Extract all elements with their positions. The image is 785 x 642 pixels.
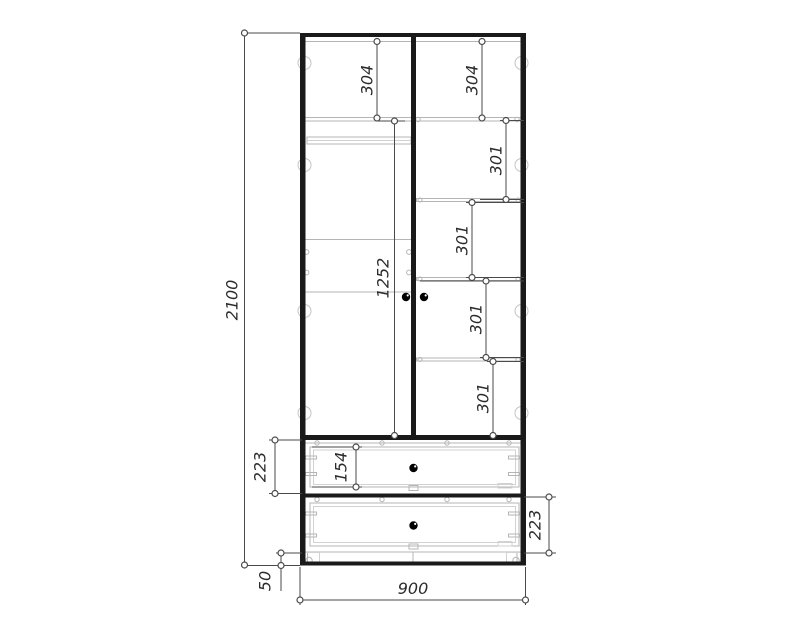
dim-label-upper-drawer: 223 <box>251 452 270 483</box>
dim-left-hanging: 1252 <box>374 118 406 439</box>
drawer-2-knob-icon <box>409 521 417 529</box>
fitting-icon <box>507 497 511 501</box>
drawer-divider <box>300 494 526 498</box>
center-partition <box>411 33 416 438</box>
dim-drawer-front: 154 <box>312 444 362 490</box>
drawer-2-slide-right <box>509 534 520 537</box>
knob-highlight <box>414 465 416 467</box>
drawer-1-support <box>409 486 418 491</box>
cam-fitting-icon <box>407 250 412 255</box>
drawer-1-slide-left <box>306 456 317 459</box>
dim-plinth: 50 <box>256 550 303 591</box>
knob-highlight <box>425 294 427 296</box>
dim-label-right-top-section: 304 <box>463 65 482 96</box>
dim-label-right-shelf-2: 301 <box>453 225 472 256</box>
dim-label-left-hanging: 1252 <box>374 258 393 299</box>
dim-label-overall-height: 2100 <box>223 280 242 321</box>
dim-right-top-section: 304 <box>463 39 486 122</box>
cabinet-structure <box>298 33 528 566</box>
dim-label-drawer-front: 154 <box>332 452 351 483</box>
drawer-1-slide-right <box>509 456 520 459</box>
knob-highlight <box>407 294 409 296</box>
dim-label-plinth: 50 <box>256 571 275 591</box>
dim-left-top-section: 304 <box>358 39 381 122</box>
dim-label-right-shelf-1: 301 <box>487 145 506 176</box>
dim-overall-height: 2100 <box>223 30 301 568</box>
dim-label-overall-width: 900 <box>398 579 429 598</box>
drawer-1-slide-left <box>306 473 317 476</box>
dim-label-right-shelf-4: 301 <box>474 383 493 414</box>
drawer-1-slide-right <box>509 473 520 476</box>
dim-label-left-top-section: 304 <box>358 65 377 96</box>
left-wall <box>300 33 306 566</box>
dim-lower-drawer: 223 <box>524 494 556 556</box>
fitting-icon <box>445 497 449 501</box>
dim-right-shelf-2: 301 <box>453 200 525 281</box>
wardrobe-drawing: 2100 304 304 301 <box>0 0 785 642</box>
drawer-2-slide-left <box>306 534 317 537</box>
drawer-1-knob-icon <box>409 464 417 472</box>
right-wall <box>521 33 527 566</box>
drawer-2-slide-right <box>509 512 520 515</box>
fitting-icon <box>315 497 319 501</box>
dim-label-right-shelf-3: 301 <box>467 304 486 335</box>
drawer-2-slide-left <box>306 512 317 515</box>
dim-label-lower-drawer: 223 <box>526 510 545 541</box>
right-shelf-3 <box>417 358 522 361</box>
right-door-knob-icon <box>420 293 428 301</box>
bottom-panel <box>300 562 526 566</box>
dim-upper-drawer: 223 <box>251 437 303 497</box>
cam-fitting-icon <box>407 270 412 275</box>
fitting-icon <box>380 497 384 501</box>
dim-right-shelf-3: 301 <box>420 278 524 361</box>
dim-right-shelf-4: 301 <box>474 359 525 439</box>
dimensions: 2100 304 304 301 <box>223 30 557 605</box>
dim-overall-width: 900 <box>297 567 529 605</box>
drawer-2 <box>306 497 520 549</box>
knob-highlight <box>414 523 416 525</box>
left-door-knob-icon <box>402 293 410 301</box>
